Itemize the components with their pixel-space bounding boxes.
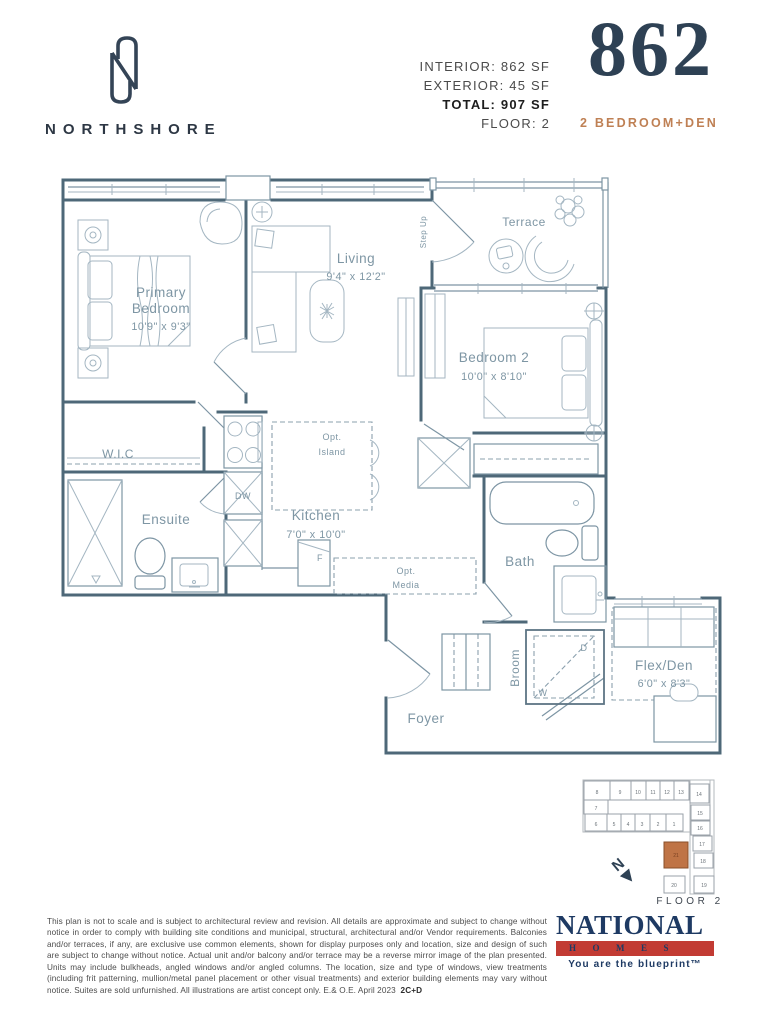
svg-text:7: 7: [595, 806, 598, 812]
label-wic: W.I.C: [102, 447, 134, 461]
building-keyplate: 8 9 10 11 12 13 14 7 6 5 4 3 2 1 15 16 1…: [572, 768, 762, 908]
svg-text:12: 12: [664, 790, 670, 796]
floor-plan: Primary Bedroom 10'9" x 9'3" Living 9'4"…: [54, 170, 730, 766]
ensuite-shower-icon: [68, 480, 122, 586]
svg-text:10: 10: [635, 790, 641, 796]
svg-text:4: 4: [627, 822, 630, 828]
label-bath: Bath: [505, 554, 535, 569]
label-broom: Broom: [508, 649, 522, 687]
svg-text:15: 15: [697, 811, 703, 817]
terrace-table-icon: [489, 239, 523, 273]
svg-text:3: 3: [641, 822, 644, 828]
living-sofa-icon: [252, 226, 330, 352]
brand-block: NORTHSHORE: [38, 30, 210, 138]
primary-chair-icon: [200, 202, 242, 244]
living-lamp-icon: [252, 202, 272, 222]
svg-text:11: 11: [650, 790, 655, 796]
svg-text:8: 8: [596, 790, 599, 796]
floorplan-sheet: NORTHSHORE INTERIOR: 862 SF EXTERIOR: 45…: [0, 0, 762, 1024]
svg-text:Bedroom: Bedroom: [132, 301, 190, 316]
dims-flex-den: 6'0" x 8'3": [638, 678, 691, 690]
keyplate-units: 8 9 10 11 12 13 14 7 6 5 4 3 2 1 15 16 1…: [584, 781, 714, 893]
label-kitchen: Kitchen: [292, 508, 341, 523]
dims-living: 9'4" x 12'2": [326, 271, 385, 283]
terrace-chair-icon: [525, 236, 574, 282]
svg-text:16: 16: [697, 826, 703, 832]
label-opt-media: Opt.: [396, 566, 415, 576]
keyplate-floor-label: FLOOR 2: [656, 896, 723, 907]
label-ensuite: Ensuite: [142, 512, 191, 527]
wall-pier: [226, 176, 270, 200]
svg-text:20: 20: [671, 883, 677, 889]
svg-text:2: 2: [657, 822, 660, 828]
flexden-daybed-icon: [614, 607, 714, 647]
svg-text:6: 6: [595, 822, 598, 828]
island-stools-icon: [370, 440, 379, 500]
label-step-up: Step Up: [419, 216, 428, 248]
label-primary-bedroom: Primary: [136, 285, 186, 300]
label-living: Living: [337, 251, 375, 266]
svg-text:18: 18: [700, 859, 706, 865]
ensuite-toilet-icon: [135, 538, 165, 589]
svg-text:21: 21: [673, 853, 679, 859]
stat-exterior: EXTERIOR: 45 SF: [420, 76, 550, 95]
flexden-desk-icon: [654, 684, 716, 742]
bedroom2-dresser-icon: [425, 294, 445, 378]
label-fridge: F: [317, 553, 323, 563]
bath-toilet-icon: [546, 526, 598, 560]
kitchen-pantry-icon: [224, 520, 262, 566]
label-washer: W: [539, 688, 548, 698]
dims-bedroom2: 10'0" x 8'10": [461, 371, 527, 383]
svg-text:14: 14: [696, 792, 702, 798]
plan-code: 2C+D: [401, 986, 423, 995]
label-bedroom2: Bedroom 2: [459, 350, 530, 365]
brand-name: NORTHSHORE: [38, 121, 210, 138]
logo-tagline: You are the blueprint™: [556, 959, 714, 970]
legal-disclaimer: This plan is not to scale and is subject…: [47, 916, 547, 996]
ensuite-sink-icon: [172, 558, 218, 592]
bath-tub-icon: [490, 482, 594, 524]
svg-text:9: 9: [619, 790, 622, 796]
label-dryer: D: [581, 643, 588, 653]
terrace-plant-icon: [555, 196, 584, 226]
kitchen-fridge-icon: [298, 540, 330, 586]
dims-primary-bedroom: 10'9" x 9'3": [131, 321, 190, 333]
living-console-icon: [398, 298, 414, 376]
unit-number: 862: [560, 10, 742, 88]
stat-floor: FLOOR: 2: [420, 114, 550, 133]
label-flex-den: Flex/Den: [635, 658, 693, 673]
stat-interior: INTERIOR: 862 SF: [420, 57, 550, 76]
northshore-monogram-icon: [96, 30, 152, 108]
coffee-table-icon: [310, 280, 344, 342]
unit-type: 2 BEDROOM+DEN: [556, 116, 742, 130]
unit-stats: INTERIOR: 862 SF EXTERIOR: 45 SF TOTAL: …: [420, 57, 550, 133]
homes-bar: HOMES: [556, 941, 714, 956]
svg-text:Island: Island: [318, 447, 345, 457]
national-homes-logo: NATIONAL HOMES You are the blueprint™: [556, 912, 714, 970]
svg-text:13: 13: [678, 790, 684, 796]
dims-kitchen: 7'0" x 10'0": [286, 529, 345, 541]
svg-text:5: 5: [613, 822, 616, 828]
national-wordmark: NATIONAL: [556, 912, 714, 940]
north-arrow-icon: N: [608, 855, 636, 886]
kitchen-stove-icon: [224, 416, 262, 468]
svg-text:17: 17: [699, 842, 705, 848]
svg-text:1: 1: [673, 822, 676, 828]
bath-sink-icon: [554, 566, 606, 622]
label-foyer: Foyer: [407, 711, 444, 726]
stat-total: TOTAL: 907 SF: [420, 95, 550, 114]
label-terrace: Terrace: [502, 215, 546, 229]
svg-text:19: 19: [701, 883, 707, 889]
label-dw: DW: [235, 491, 251, 501]
svg-text:Media: Media: [392, 580, 419, 590]
label-opt-island: Opt.: [322, 432, 341, 442]
